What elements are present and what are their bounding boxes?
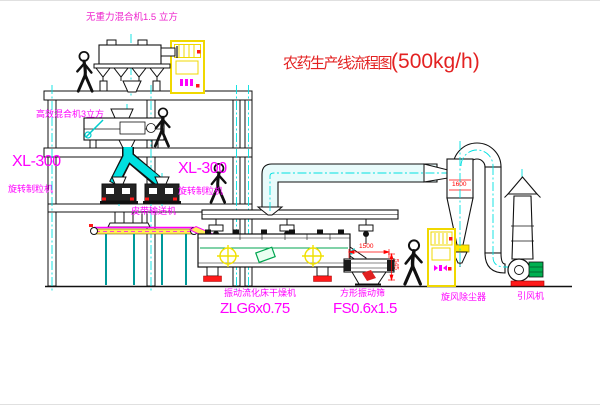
top-mixer-label: 无重力混合机1.5 立方 — [86, 13, 178, 23]
title-chinese: 农药生产线流程图 — [283, 55, 391, 72]
title-capacity: (500kg/h) — [391, 50, 480, 73]
granulator-left — [100, 173, 138, 208]
screen-length-dimension: 1500 — [359, 244, 373, 251]
granulator-right-name: 旋转制粒机 — [178, 187, 223, 196]
belt-conveyor-label: 皮带输送机 — [131, 207, 176, 216]
granulator-left-model: XL-300 — [12, 154, 61, 170]
dryer-model-label: ZLG6x0.75 — [220, 301, 290, 316]
page-title: 农药生产线流程图(500kg/h) — [283, 51, 480, 72]
gravity-mixer — [94, 34, 177, 96]
vibrating-screen — [344, 248, 394, 285]
cyclone-label: 旋风除尘器 — [441, 293, 486, 302]
person-figure-yard — [405, 240, 421, 284]
screen-height-dimension: 545 — [392, 259, 399, 270]
granulator-right-model: XL-300 — [178, 161, 227, 177]
dryer-name-label: 振动流化床干燥机 — [224, 289, 296, 298]
cyclone-separator — [447, 141, 514, 273]
second-mixer-label: 高效混合机3立方 — [36, 110, 104, 119]
induced-draft-fan — [508, 259, 544, 286]
screen-name-label: 方形振动筛 — [340, 289, 385, 298]
control-cabinet-right — [428, 229, 455, 286]
person-figure-roof — [77, 52, 92, 91]
granulator-left-name: 旋转制粒机 — [8, 185, 53, 194]
exhaust-duct — [258, 164, 450, 215]
control-cabinet-top — [171, 41, 204, 93]
diagram-canvas: 无重力混合机1.5 立方 农药生产线流程图(500kg/h) 高效混合机3立方 … — [0, 0, 600, 405]
screen-model-label: FS0.6x1.5 — [333, 301, 397, 316]
cyclone-size-marking: 1600 — [452, 182, 466, 189]
fan-label: 引风机 — [517, 292, 544, 301]
